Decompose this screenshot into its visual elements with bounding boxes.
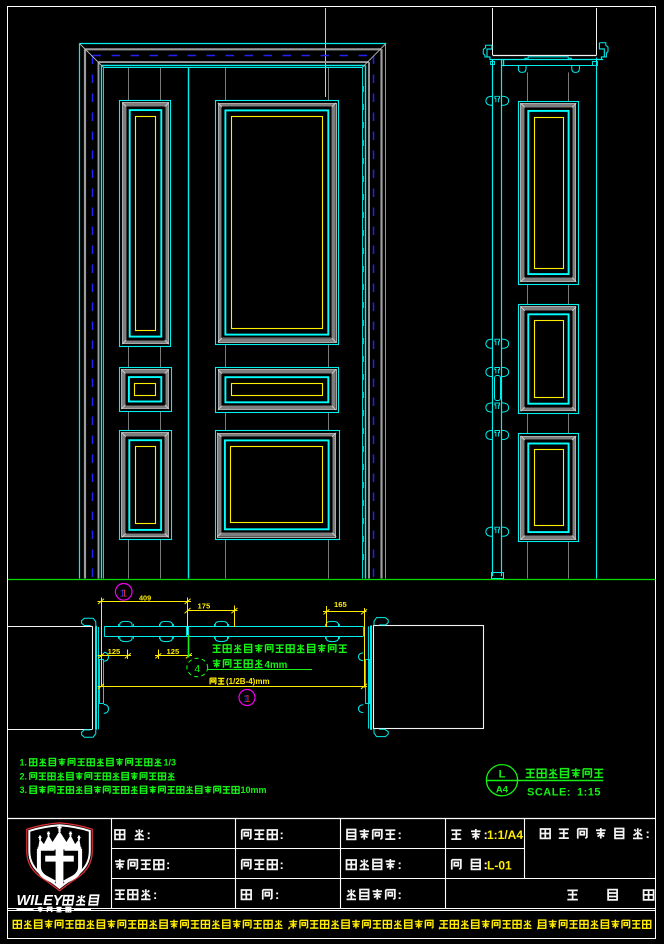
svg-text:125: 125 [167, 647, 180, 656]
svg-text:1: 1 [121, 587, 127, 599]
svg-text::: : [398, 887, 402, 902]
svg-text:10mm: 10mm [241, 785, 267, 795]
svg-text:SCALE:: SCALE: [527, 787, 571, 799]
svg-text::: : [280, 857, 284, 872]
svg-text::: : [153, 887, 157, 902]
svg-text:1/3: 1/3 [164, 757, 177, 767]
svg-text:175: 175 [198, 601, 211, 610]
svg-text:(1/2B-4)mm: (1/2B-4)mm [226, 677, 270, 686]
svg-text::: : [646, 826, 650, 841]
svg-text:1:1/A4: 1:1/A4 [487, 828, 523, 842]
svg-text::: : [398, 857, 402, 872]
svg-text:1:15: 1:15 [577, 787, 601, 799]
svg-text::: : [147, 827, 151, 842]
svg-text:A4: A4 [496, 785, 509, 796]
svg-text:125: 125 [108, 647, 121, 656]
svg-text:L-01: L-01 [487, 859, 512, 873]
svg-text:4: 4 [194, 663, 200, 675]
svg-text::: : [280, 827, 284, 842]
svg-text::: : [166, 857, 170, 872]
svg-text:1.: 1. [20, 757, 28, 767]
svg-text::: : [398, 827, 402, 842]
svg-text:165: 165 [334, 600, 347, 609]
svg-text:1: 1 [245, 693, 251, 705]
svg-text:2.: 2. [20, 771, 28, 781]
svg-text::: : [275, 887, 279, 902]
svg-text:3.: 3. [20, 785, 28, 795]
svg-text:L: L [499, 769, 506, 781]
svg-text:409: 409 [139, 593, 151, 602]
